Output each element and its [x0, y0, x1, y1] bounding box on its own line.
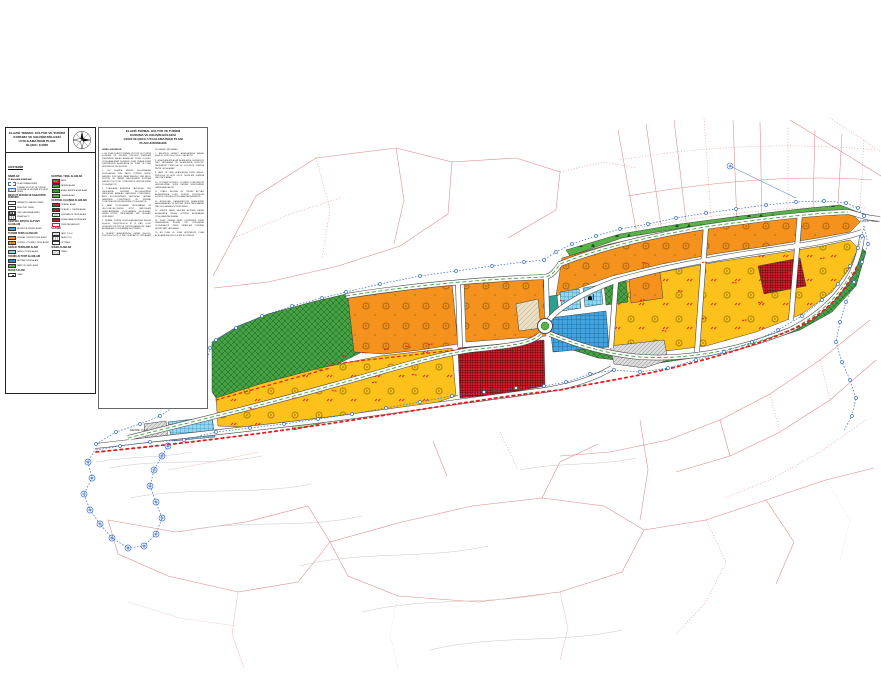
legend-item-label: PARK VE YEŞİL ALAN — [17, 265, 38, 267]
legend-swatch-green-h — [52, 189, 60, 193]
legend-item: MÜLKİYET SINIRI — [8, 206, 50, 210]
legend-item: SAĞLIK TESİSİ ALANI — [8, 250, 50, 254]
legend-item: TURİZM + TİCARET TESİS ALANI — [8, 241, 50, 245]
legend-heading: GÖSTERİM — [8, 165, 23, 169]
legend-group-header: DİĞER ALANLAR — [52, 247, 94, 250]
legend-item: ARITMA TESİSİ ALANI — [8, 259, 50, 263]
legend-swatch-line-dash — [8, 211, 16, 215]
legend-item-label: PARK — [61, 180, 66, 182]
provision-paragraph: 1. BU PLAN, ELAZIĞ TERMAL KÜLTÜR VE TURİ… — [102, 153, 151, 169]
legend-swatch-line-dots — [8, 215, 16, 219]
legend-item-label: PLAN ONAMA SINIRI — [17, 183, 37, 185]
legend-group-header: KENTSEL ÇALIŞMA ALANLARI — [52, 200, 94, 203]
legend-item-label: KONAKLAMA TESİS ALANI — [61, 219, 86, 221]
legend-swatch-orange2 — [8, 241, 16, 245]
legend-item-label: ARITMA TESİSİ ALANI — [17, 260, 38, 262]
legend-item: KONAKLAMA TESİS ALANI — [52, 218, 94, 222]
legend-item-label: KADASTRO PARSEL SINIRI — [17, 202, 43, 204]
legend-item-label: AĞAÇLANDIRILACAK ALAN — [61, 190, 87, 192]
provision-paragraph: 14. PLAN ONAMA SINIRI İÇERİSİNDE DERE YA… — [155, 220, 204, 231]
title-line: PLAN HÜKÜMLERİ — [101, 142, 205, 146]
legend-item-label: YÖNETİM MERKEZİ — [61, 224, 80, 226]
compass-rose-icon — [72, 130, 92, 150]
provision-paragraph: 15. BU PLAN VE PLAN HÜKÜMLERİ, PLAN AÇIK… — [155, 232, 204, 237]
legend-item: PARK VE YEŞİL ALAN — [8, 264, 50, 268]
legend-item: OTOPARK — [52, 241, 94, 245]
legend-title-row: ELAZIĞ TERMAL KÜLTÜR VE TURİZMKORUMA VE … — [6, 128, 95, 153]
legend-item-label: OTOPARK — [61, 242, 71, 244]
legend-item: İFRAZ HATTI — [8, 215, 50, 219]
provision-paragraph: 9. PARK VE YEŞİL ALANLARDA; BÜFE, HAVUZ,… — [155, 172, 204, 180]
legend-item-label: TİCARET ALANI — [61, 204, 76, 206]
legend-item-label: YAPI YAKLAŞMA SINIRI — [17, 212, 39, 214]
legend-swatch-red-b — [52, 223, 60, 227]
provisions-title-block: ELAZIĞ TERMAL KÜLTÜR VE TURİZMKORUMA VE … — [99, 128, 207, 147]
road-label-east: CİRCİP YOLU — [860, 218, 878, 223]
provision-paragraph: 12. ATIKSULAR; KANALİZASYON ŞEBEKESİNE B… — [155, 201, 204, 209]
legend-item: TERMAL KÜLTÜR VE TURİZM KORUMA VE GELİŞİ… — [8, 187, 50, 193]
legend-swatch-red-h2 — [52, 218, 60, 222]
legend-item: MESİRE ALANI — [52, 184, 94, 188]
legend-item-label: TRAFO — [61, 251, 68, 253]
legend-group-header: KENTSEL SOSYAL ALTYAPI ALANLARI — [8, 221, 50, 227]
provision-paragraph: 3. PLANLAMA ALANINDA YAPILACAK TÜM YAPIL… — [102, 188, 151, 204]
legend-item: PLAN ONAMA SINIRI — [8, 182, 50, 186]
legend-swatch-red-h — [52, 208, 60, 212]
contour-lines — [96, 452, 636, 650]
legend-swatch-gray — [52, 250, 60, 254]
legend-swatch-park — [52, 241, 60, 245]
legend-item-label: İFRAZ HATTI — [17, 216, 29, 218]
provisions-text: GENEL HÜKÜMLER1. BU PLAN, ELAZIĞ TERMAL … — [99, 147, 207, 409]
legend-item: TİCARET + TURİZM ALANI — [52, 208, 94, 212]
legend-item: PARK — [52, 179, 94, 183]
legend-swatch-green2 — [8, 264, 16, 268]
legend-item: ORMAN ALANI — [52, 194, 94, 198]
legend-item: YAYA YOLU — [52, 236, 94, 240]
legend-column-right: KENTSEL YEŞİL ALANLARPARKMESİRE ALANIAĞA… — [52, 175, 94, 279]
legend-swatch-blue2 — [8, 259, 16, 263]
legend-item-label: TAŞIT YOLU — [61, 233, 73, 235]
legend-item-label: BELEDİYE HİZMET ALANI — [17, 228, 42, 230]
legend-swatch-red — [52, 203, 60, 207]
legend-item: TİCARET ALANI — [52, 203, 94, 207]
legend-item: TERMAL TURİZM TESİS ALANI — [8, 236, 50, 240]
legend-item-label: TERMAL KÜLTÜR VE TURİZM KORUMA VE GELİŞİ… — [17, 187, 49, 193]
legend-swatch-road — [52, 232, 60, 236]
legend-group-header: İBADET ALANI — [8, 270, 50, 273]
legend-swatch-green-t — [52, 194, 60, 198]
plan-sheet: MEZRE YOLU CİRCİP YOLU ELAZIĞ TERMAL KÜL… — [0, 0, 881, 686]
legend-column-left: SINIRLARPLANLAMA SINIRLARIPLAN ONAMA SIN… — [8, 175, 50, 279]
legend-swatch-green-red — [52, 179, 60, 183]
legend-item-label: ORMAN ALANI — [61, 195, 75, 197]
legend-item-label: TİCARET + TURİZM ALANI — [61, 209, 86, 211]
road-label-west: MEZRE YOLU — [130, 428, 148, 432]
legend-swatch-plan-onama — [8, 182, 16, 186]
legend-group-header: TEKNİK ALTYAPI ALANLARI — [8, 256, 50, 259]
legend-item-label: TURİZM + TİCARET TESİS ALANI — [17, 242, 49, 244]
provision-paragraph: 7. BELEDİYE HİZMET ALANLARINDA EMSAL (E)… — [155, 153, 204, 158]
provision-paragraph: 10. OTOPARK İHTİYACI; OTOPARK YÖNETMELİĞ… — [155, 182, 204, 190]
plan-title-block: ELAZIĞ TERMAL KÜLTÜR VE TURİZMKORUMA VE … — [6, 128, 69, 152]
legend-group-header: ULAŞIM — [52, 228, 94, 231]
legend-swatch-mosque — [8, 273, 16, 277]
provision-paragraph: 4. İMAR UYGULAMASI YAPILMADAN VE JEOLOJİ… — [102, 205, 151, 218]
legend-item-label: TERMAL TURİZM TESİS ALANI — [17, 237, 46, 239]
legend-group-subheader: PLANLAMA SINIRLARI — [8, 179, 50, 181]
legend-swatch-orange — [8, 236, 16, 240]
legend-item-label: MESİRE ALANI — [61, 185, 75, 187]
legend-swatch-line-red-dash — [8, 201, 16, 205]
provision-paragraph: 2. BU PLANDA HÜKÜM BULUNMAYAN KONULARDA;… — [102, 170, 151, 186]
legend-swatch-green — [52, 184, 60, 188]
provision-paragraph: 8. AĞAÇLANDIRILACAK ALANLARDA KESİNLİKLE… — [155, 160, 204, 171]
legend-swatch-blue — [8, 227, 16, 231]
provision-paragraph: GENEL HÜKÜMLER — [102, 149, 151, 152]
legend-item: AĞAÇLANDIRILACAK ALAN — [52, 189, 94, 193]
legend-panel: ELAZIĞ TERMAL KÜLTÜR VE TURİZMKORUMA VE … — [5, 127, 96, 394]
legend-item: TRAFO — [52, 250, 94, 254]
legend-item: GÜNÜBİRLİK TESİS ALANI — [52, 213, 94, 217]
legend-item: CAMİ — [8, 273, 50, 277]
legend-group-header: SAĞLIK TESİSLERİ ALANI — [8, 247, 50, 250]
legend-swatch-ktkgb — [8, 188, 16, 192]
legend-item-label: SAĞLIK TESİSİ ALANI — [17, 251, 38, 253]
provision-paragraph: 13. ENERJİ NAKİL HATLARI ALTINDA KALAN A… — [155, 210, 204, 218]
plan-provisions-panel: ELAZIĞ TERMAL KÜLTÜR VE TURİZMKORUMA VE … — [98, 127, 208, 409]
compass-box — [69, 128, 95, 152]
roundabout — [538, 319, 553, 334]
legend-item-label: CAMİ — [17, 274, 22, 276]
legend-item-label: MÜLKİYET SINIRI — [17, 207, 34, 209]
legend-group-header: KENTSEL YEŞİL ALANLAR — [52, 176, 94, 179]
provision-paragraph: 11. TRAFO, ARITMA VB. TEKNİK ALTYAPI ALA… — [155, 191, 204, 199]
legend-item: BELEDİYE HİZMET ALANI — [8, 227, 50, 231]
legend-item: YÖNETİM MERKEZİ — [52, 223, 94, 227]
legend-swatch-red2 — [52, 213, 60, 217]
provision-paragraph: 5. TERMAL TURİZM TESİS ALANLARINDA; EMSA… — [102, 220, 151, 231]
legend-item: YAPI YAKLAŞMA SINIRI — [8, 211, 50, 215]
legend-swatch-cyan — [8, 250, 16, 254]
legend-group-header: MEVCUT DURUM VE KADASTRO DURUMU — [8, 195, 50, 201]
legend-item-label: GÜNÜBİRLİK TESİS ALANI — [61, 214, 86, 216]
legend-item-label: YAYA YOLU — [61, 237, 72, 239]
legend-group-header: TURİZM TESİS ALANLARI — [8, 233, 50, 236]
legend-swatch-road2 — [52, 236, 60, 240]
title-line: ÖLÇEK: 1/1000 — [26, 144, 48, 148]
legend-item: TAŞIT YOLU — [52, 232, 94, 236]
legend-swatch-line-solid — [8, 206, 16, 210]
legend-item: KADASTRO PARSEL SINIRI — [8, 201, 50, 205]
legend-body: SINIRLARPLANLAMA SINIRLARIPLAN ONAMA SIN… — [6, 173, 95, 281]
